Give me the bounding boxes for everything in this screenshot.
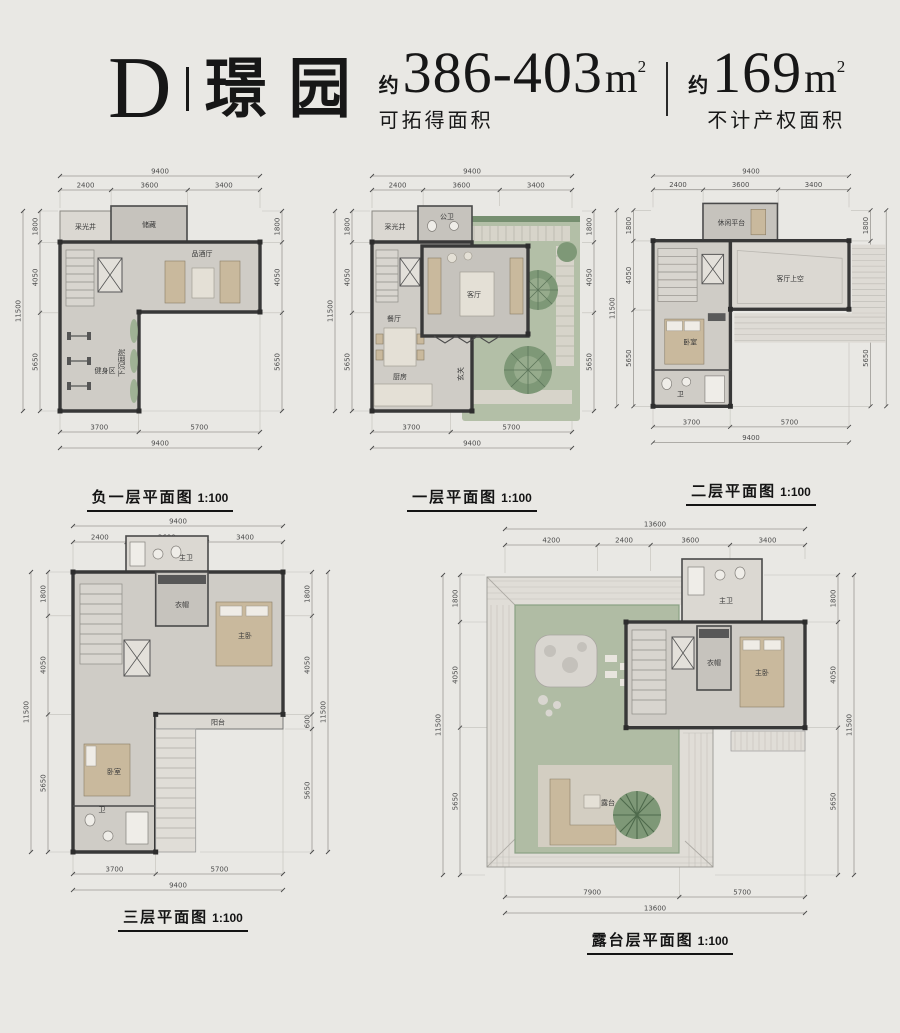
dim-bottom: 3700 5700 9400 bbox=[651, 418, 851, 444]
plan-title-text: 负一层平面图 bbox=[92, 489, 194, 506]
plan-scale: 1:100 bbox=[212, 911, 243, 925]
plan-terrace-drawing: 13600 4200 2400 3600 3400 11500 1800 405… bbox=[430, 515, 890, 927]
stairs bbox=[80, 584, 122, 664]
toilet bbox=[85, 814, 95, 826]
dim-label: 5700 bbox=[190, 424, 208, 432]
palm-tree bbox=[613, 791, 661, 839]
dim-label: 5650 bbox=[586, 353, 594, 371]
dim-label: 5700 bbox=[781, 418, 798, 426]
room-label: 餐厅 bbox=[387, 314, 401, 323]
bathtub bbox=[130, 542, 145, 566]
dim-label: 1800 bbox=[452, 590, 460, 608]
room-label: 卫 bbox=[677, 390, 684, 398]
dim-label: 4050 bbox=[32, 269, 40, 287]
stairs bbox=[66, 250, 94, 306]
dim-label: 9400 bbox=[742, 168, 759, 176]
room-label: 露台 bbox=[601, 798, 615, 807]
dim-left: 11500 1800 4050 5650 bbox=[327, 209, 355, 413]
room-label: 主卧 bbox=[755, 668, 769, 677]
dim-label: 9400 bbox=[169, 518, 187, 526]
sun-lounger bbox=[751, 209, 766, 234]
room-label: 公卫 bbox=[440, 213, 454, 221]
area2-value: 169 bbox=[712, 44, 802, 102]
dim-top: 9400 2400 3600 3400 bbox=[370, 168, 574, 193]
dim-label: 1800 bbox=[586, 218, 594, 236]
dim-label: 1800 bbox=[625, 217, 633, 234]
dim-label: 5700 bbox=[502, 424, 520, 432]
dim-label: 1800 bbox=[304, 585, 312, 603]
dim-label: 4050 bbox=[304, 656, 312, 674]
room-label: 衣帽 bbox=[707, 658, 721, 667]
dim-label: 5650 bbox=[625, 349, 633, 366]
dim-label: 9400 bbox=[463, 168, 481, 176]
plan-title: 一层平面图1:100 bbox=[407, 486, 537, 512]
room-label: 健身区 bbox=[95, 366, 116, 375]
dim-label: 11500 bbox=[846, 714, 854, 736]
plan-title: 露台层平面图1:100 bbox=[587, 929, 734, 955]
dim-label: 3700 bbox=[402, 424, 420, 432]
stairs bbox=[376, 250, 398, 302]
dim-left: 11500 1800 4050 5650 bbox=[435, 573, 463, 877]
room-label: 客厅上空 bbox=[776, 274, 804, 283]
plan-title: 负一层平面图1:100 bbox=[87, 486, 234, 512]
dim-label: 9400 bbox=[169, 882, 187, 890]
dim-label: 11500 bbox=[608, 297, 616, 319]
dim-left: 11500 1800 4050 5650 bbox=[15, 209, 43, 413]
dim-bottom: 7900 5700 13600 bbox=[503, 889, 807, 916]
dim-top: 9400 2400 3600 3400 bbox=[58, 168, 262, 193]
header-divider-tall bbox=[666, 62, 668, 116]
plan-first-floor-drawing: 9400 2400 3600 3400 11500 1800 4050 5650… bbox=[322, 166, 622, 484]
room-label: 采光井 bbox=[75, 222, 96, 231]
dim-label: 13600 bbox=[644, 521, 666, 529]
unit-type-letter: D bbox=[108, 45, 172, 133]
room-label: 休闲平台 bbox=[718, 218, 746, 227]
dim-right: 1800 4050 5650 bbox=[274, 209, 285, 413]
dim-label: 3700 bbox=[105, 866, 123, 874]
dim-label: 4200 bbox=[542, 537, 560, 545]
area1-prefix: 约 bbox=[379, 69, 399, 98]
area2-prefix: 约 bbox=[688, 69, 708, 98]
outdoor-stairs bbox=[156, 729, 196, 852]
dim-label: 1800 bbox=[344, 218, 352, 236]
dim-label: 3400 bbox=[236, 534, 254, 542]
room-label: 阳台 bbox=[211, 718, 225, 727]
dim-bottom: 3700 5700 9400 bbox=[370, 424, 574, 451]
dim-label: 9400 bbox=[151, 440, 169, 448]
plan-basement-drawing: 9400 2400 3600 3400 11500 1800 4050 5650… bbox=[10, 166, 310, 484]
guest-bath bbox=[418, 206, 472, 242]
dim-label: 4050 bbox=[586, 269, 594, 287]
room-label: 卧室 bbox=[683, 338, 697, 347]
dim-label: 4050 bbox=[344, 269, 352, 287]
dim-label: 4050 bbox=[452, 666, 460, 684]
dim-label: 5650 bbox=[452, 792, 460, 810]
building: 休闲平台 客厅上空 卧室 卫 bbox=[651, 203, 852, 408]
dim-label: 2400 bbox=[91, 534, 109, 542]
dim-label: 5650 bbox=[862, 349, 870, 366]
dim-label: 3700 bbox=[683, 418, 700, 426]
elevator bbox=[702, 254, 724, 283]
plan-basement: 9400 2400 3600 3400 11500 1800 4050 5650… bbox=[10, 166, 310, 512]
room-label: 品酒厅 bbox=[192, 250, 213, 258]
dim-bottom: 3700 5700 9400 bbox=[58, 424, 262, 451]
plan-second-floor-drawing: 9400 2400 3600 3400 11500 1800 4050 5650… bbox=[604, 166, 898, 478]
dim-label: 3600 bbox=[732, 181, 749, 189]
dim-label: 1800 bbox=[274, 218, 282, 236]
area2-label: 不计产权面积 bbox=[707, 104, 845, 133]
plan-second-floor: 9400 2400 3600 3400 11500 1800 4050 5650… bbox=[604, 166, 898, 506]
dim-label: 4050 bbox=[625, 267, 633, 284]
area2-unit: m bbox=[804, 58, 837, 100]
dim-bottom: 3700 5700 9400 bbox=[71, 866, 285, 893]
dim-label: 3600 bbox=[452, 182, 470, 190]
dim-label: 5650 bbox=[830, 792, 838, 810]
lounge-seat bbox=[220, 261, 240, 303]
area-figures: 约 386-403 m 2 可拓得面积 约 169 m 2 不计产权面积 bbox=[379, 44, 846, 133]
planting-strip bbox=[130, 319, 138, 403]
plan-scale: 1:100 bbox=[780, 485, 811, 499]
dim-right: 1800 4050 5650 11500 bbox=[830, 573, 857, 877]
dim-label: 2400 bbox=[615, 537, 633, 545]
dim-label: 5650 bbox=[344, 353, 352, 371]
dim-label: 3600 bbox=[140, 182, 158, 190]
dim-label: 2400 bbox=[669, 181, 686, 189]
plan-title-text: 露台层平面图 bbox=[592, 932, 694, 949]
kitchen-counter bbox=[374, 384, 432, 406]
closet bbox=[697, 626, 731, 690]
room-label: 卧室 bbox=[107, 767, 121, 776]
dim-label: 13600 bbox=[644, 905, 666, 913]
dim-label: 5700 bbox=[733, 889, 751, 897]
floorplan-sheet: D 璟园 约 386-403 m 2 可拓得面积 约 169 m 2 bbox=[0, 0, 900, 1033]
building: 采光井 储藏 品酒厅 健身区 下沉庭院 bbox=[58, 206, 263, 414]
elevator bbox=[124, 640, 150, 676]
dim-label: 5700 bbox=[210, 866, 228, 874]
lounge-seat bbox=[165, 261, 185, 303]
dim-top: 9400 2400 3600 3400 bbox=[651, 168, 851, 192]
plan-scale: 1:100 bbox=[698, 934, 729, 948]
header: D 璟园 约 386-403 m 2 可拓得面积 约 169 m 2 bbox=[108, 44, 845, 133]
area-block-2: 约 169 m 2 不计产权面积 bbox=[688, 44, 845, 133]
room-label: 主卫 bbox=[179, 553, 193, 562]
plan-title-text: 三层平面图 bbox=[123, 909, 208, 926]
plan-third-floor-drawing: 9400 2400 3600 3400 11500 1800 4050 5650… bbox=[18, 512, 348, 904]
area-block-1: 约 386-403 m 2 可拓得面积 bbox=[379, 44, 647, 133]
dim-label: 1800 bbox=[862, 217, 870, 234]
area1-unit: m bbox=[605, 58, 638, 100]
dim-right: 1800 4050 600 5650 11500 bbox=[304, 570, 331, 854]
dim-label: 11500 bbox=[23, 701, 31, 723]
dim-label: 2400 bbox=[389, 182, 407, 190]
dim-label: 9400 bbox=[151, 168, 169, 176]
plan-title: 三层平面图1:100 bbox=[118, 906, 248, 932]
dim-label: 3700 bbox=[90, 424, 108, 432]
dim-label: 11500 bbox=[320, 701, 328, 723]
sink bbox=[715, 570, 725, 580]
project-name: 璟园 bbox=[205, 52, 373, 126]
dim-label: 5650 bbox=[274, 353, 282, 371]
dim-label: 9400 bbox=[742, 434, 759, 442]
wardrobe bbox=[708, 313, 726, 321]
room-label: 玄关 bbox=[456, 367, 465, 381]
bathtub bbox=[126, 812, 148, 844]
header-divider-short bbox=[186, 67, 189, 111]
elevator bbox=[98, 258, 122, 292]
area1-label: 可拓得面积 bbox=[379, 104, 647, 133]
side-table bbox=[464, 252, 472, 260]
toilet bbox=[735, 567, 745, 579]
dim-label: 2400 bbox=[77, 182, 95, 190]
side-table bbox=[448, 254, 457, 263]
dim-left: 11500 1800 4050 5650 bbox=[23, 570, 51, 854]
sofa bbox=[510, 258, 523, 314]
closet bbox=[156, 572, 208, 626]
dim-label: 11500 bbox=[15, 300, 23, 322]
dim-label: 3600 bbox=[681, 537, 699, 545]
room-label: 客厅 bbox=[467, 290, 481, 299]
area1-sup: 2 bbox=[638, 57, 647, 77]
plan-scale: 1:100 bbox=[198, 491, 229, 505]
plan-terrace: 13600 4200 2400 3600 3400 11500 1800 405… bbox=[430, 515, 890, 955]
plan-title-text: 一层平面图 bbox=[412, 489, 497, 506]
dim-label: 7900 bbox=[583, 889, 601, 897]
plan-title-text: 二层平面图 bbox=[691, 483, 776, 500]
dim-label: 4050 bbox=[830, 666, 838, 684]
dim-label: 5650 bbox=[32, 353, 40, 371]
balcony-hatch bbox=[731, 731, 805, 751]
room-label: 厨房 bbox=[393, 372, 407, 381]
dim-label: 1800 bbox=[830, 590, 838, 608]
room-label: 衣帽 bbox=[175, 600, 189, 609]
stairs bbox=[632, 630, 666, 714]
room-label: 采光井 bbox=[385, 222, 406, 231]
toilet bbox=[662, 378, 672, 390]
elevator bbox=[400, 258, 420, 286]
room-label: 卫 bbox=[99, 806, 106, 814]
dim-label: 3400 bbox=[527, 182, 545, 190]
dim-right: 1800 4050 5650 bbox=[586, 209, 597, 413]
area1-value: 386-403 bbox=[403, 44, 603, 102]
sink bbox=[153, 549, 163, 559]
dim-top: 13600 4200 2400 3600 3400 bbox=[503, 521, 807, 548]
dim-label: 600 bbox=[304, 715, 312, 728]
plan-first-floor: 9400 2400 3600 3400 11500 1800 4050 5650… bbox=[322, 166, 622, 512]
dim-label: 3400 bbox=[759, 537, 777, 545]
room-label: 储藏 bbox=[142, 220, 156, 229]
dim-label: 1800 bbox=[32, 218, 40, 236]
sink bbox=[103, 831, 113, 841]
tree bbox=[504, 346, 552, 394]
dim-label: 11500 bbox=[327, 300, 335, 322]
area2-sup: 2 bbox=[837, 57, 846, 77]
dim-left: 11500 1800 4050 5650 bbox=[608, 208, 635, 408]
dim-label: 4050 bbox=[274, 269, 282, 287]
dim-label: 11500 bbox=[435, 714, 443, 736]
plan-third-floor: 9400 2400 3600 3400 11500 1800 4050 5650… bbox=[18, 512, 348, 932]
dim-label: 5650 bbox=[304, 782, 312, 800]
bathtub bbox=[688, 567, 704, 595]
dim-label: 3400 bbox=[215, 182, 233, 190]
sink bbox=[682, 377, 691, 386]
bathtub bbox=[705, 376, 725, 402]
tree bbox=[557, 242, 577, 262]
building: 主卫 衣帽 主卧 阳台 卧室 卫 bbox=[71, 536, 286, 855]
table bbox=[192, 268, 214, 298]
stairs bbox=[658, 249, 697, 302]
plan-scale: 1:100 bbox=[501, 491, 532, 505]
room-label: 主卫 bbox=[719, 596, 733, 605]
room-label: 下沉庭院 bbox=[117, 349, 126, 377]
elevator bbox=[672, 637, 694, 669]
sofa bbox=[428, 258, 441, 314]
dim-label: 5650 bbox=[40, 774, 48, 792]
plan-title: 二层平面图1:100 bbox=[686, 480, 816, 506]
dim-label: 9400 bbox=[463, 440, 481, 448]
dim-label: 3400 bbox=[805, 181, 822, 189]
dim-label: 4050 bbox=[40, 656, 48, 674]
room-label: 主卧 bbox=[238, 631, 252, 640]
dim-label: 1800 bbox=[40, 585, 48, 603]
